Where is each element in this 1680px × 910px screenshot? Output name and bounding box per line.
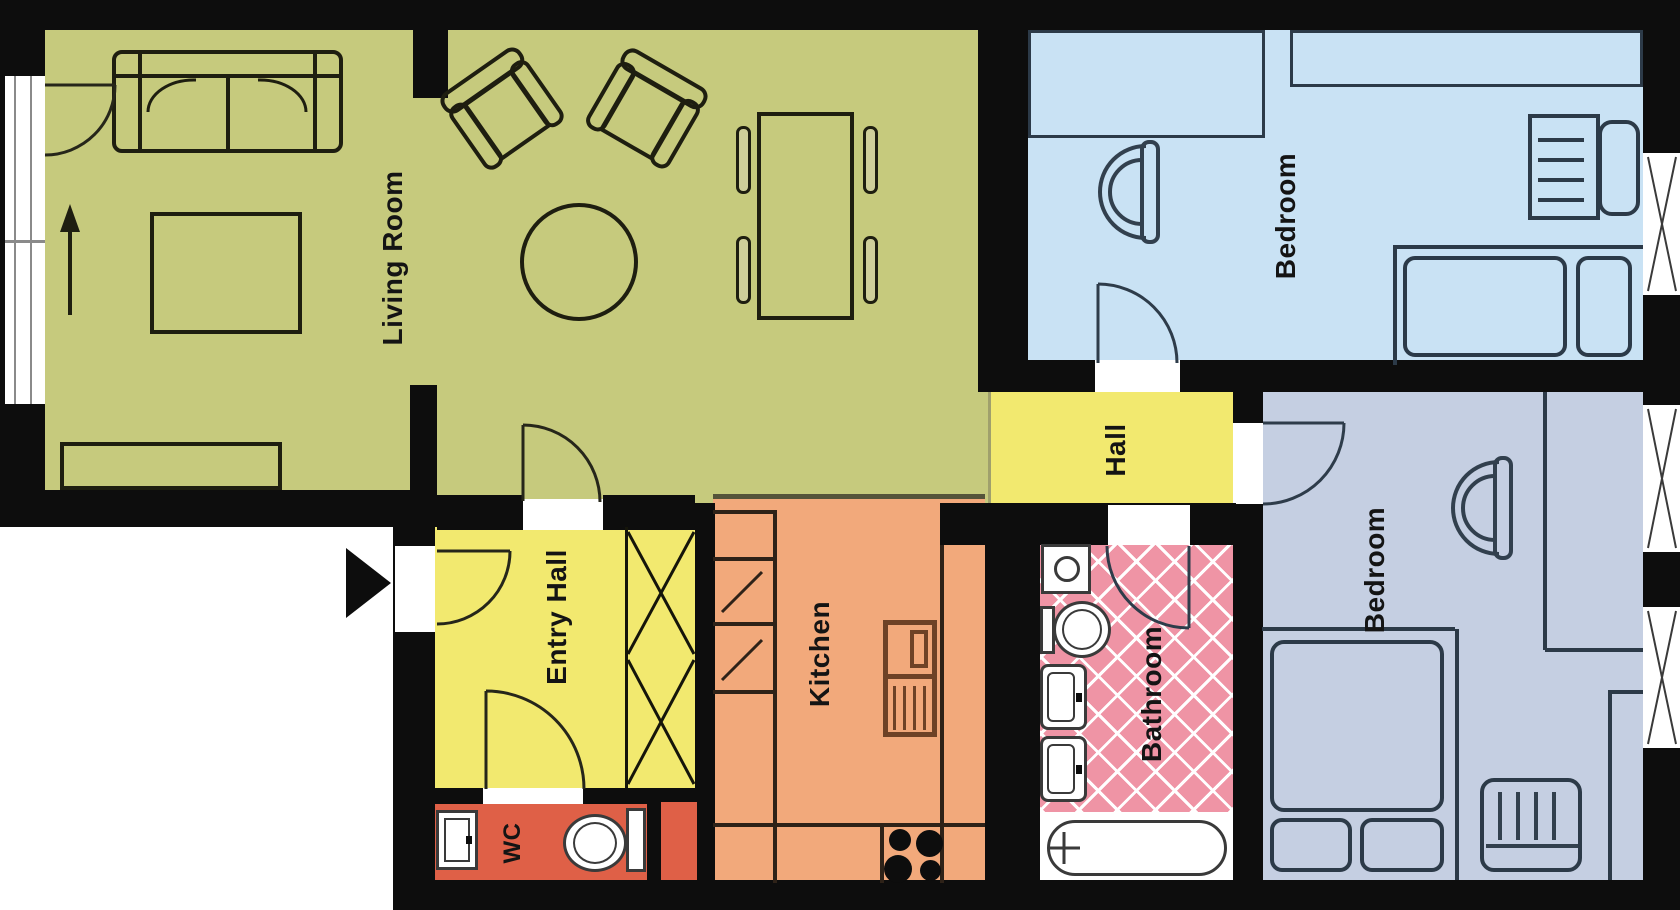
sink-basin <box>1047 744 1075 794</box>
room-label-entry-hall: Entry Hall <box>541 549 573 685</box>
wall <box>413 30 448 98</box>
sofa-seam <box>226 78 230 151</box>
wall <box>695 503 715 792</box>
duct-shaft <box>661 802 697 880</box>
wall <box>647 800 661 883</box>
sofa-armrest <box>138 52 142 151</box>
entrance-door-gap <box>395 546 435 632</box>
sink-drainer <box>913 686 916 730</box>
counter-line <box>773 510 777 883</box>
dining-chair <box>863 126 878 194</box>
stove-burner <box>916 830 943 857</box>
floor-plan: Living Room Bedroom Hall Entry Hall Kitc… <box>0 0 1680 910</box>
room-label-hall: Hall <box>1100 423 1132 476</box>
sink-tap <box>1076 693 1082 702</box>
wc-door-gap <box>483 788 583 804</box>
wall <box>437 495 523 530</box>
living-entry-door-gap <box>523 499 603 530</box>
counter-line <box>713 690 777 694</box>
wall <box>985 545 1040 883</box>
dining-chair <box>736 236 751 304</box>
sideboard <box>60 442 282 490</box>
washing-machine-door <box>1054 556 1080 582</box>
counter-line <box>940 545 944 883</box>
kitchen-living-boundary <box>713 494 985 499</box>
desk <box>1528 114 1600 220</box>
dining-chair <box>863 236 878 304</box>
sink-drainer <box>893 686 896 730</box>
counter-line <box>880 823 884 883</box>
stove-burner <box>920 860 941 881</box>
coffee-table <box>150 212 302 334</box>
sink-drainer <box>923 686 926 730</box>
room-label-bedroom-bottom: Bedroom <box>1359 507 1391 633</box>
room-label-living: Living Room <box>377 170 409 345</box>
window <box>1643 405 1680 552</box>
counter-line <box>713 557 777 561</box>
dining-table <box>757 112 854 320</box>
sink-tap <box>1076 765 1082 774</box>
wall <box>583 788 649 804</box>
room-label-bathroom: Bathroom <box>1136 626 1168 762</box>
room-label-kitchen: Kitchen <box>804 601 836 707</box>
wall <box>0 490 437 527</box>
wall <box>0 0 1680 30</box>
wall <box>1233 392 1263 423</box>
counter-line <box>713 823 985 827</box>
window <box>1643 607 1680 748</box>
sink-basin <box>1047 672 1075 722</box>
pillow <box>1270 818 1352 872</box>
wall <box>393 880 1680 910</box>
wall <box>410 385 437 492</box>
wall <box>978 360 1680 392</box>
wardrobe <box>1028 30 1265 138</box>
entrance-arrow-icon <box>346 548 391 618</box>
wall <box>603 495 695 530</box>
bedroom-top-door-gap <box>1095 360 1180 392</box>
hall-living-boundary <box>988 392 991 505</box>
round-table <box>520 203 638 321</box>
bathtub <box>1047 820 1227 876</box>
mattress <box>1270 640 1444 812</box>
bathroom-door-gap <box>1108 505 1190 545</box>
counter-line <box>713 622 777 626</box>
dining-chair <box>736 126 751 194</box>
counter-line <box>713 510 777 514</box>
mattress <box>1403 256 1567 357</box>
wall <box>1233 503 1263 883</box>
pillow <box>1576 256 1632 357</box>
wc-sink-tap <box>466 836 472 844</box>
wall <box>435 788 483 804</box>
shelf <box>1290 30 1643 87</box>
desk-chair <box>1598 120 1640 216</box>
wall <box>697 790 715 883</box>
sink-unit-divider <box>888 674 932 679</box>
closet-edge <box>625 527 628 788</box>
sofa-armrest <box>313 52 317 151</box>
wc-toilet-bowl <box>573 822 617 864</box>
room-label-bedroom-top: Bedroom <box>1270 153 1302 279</box>
wc-toilet-tank <box>626 808 646 872</box>
wall <box>978 30 1028 365</box>
window-divider <box>5 240 45 243</box>
sink-drainer <box>903 686 906 730</box>
stove-burner <box>889 829 911 851</box>
toilet-bowl <box>1062 609 1102 650</box>
window <box>1643 153 1680 295</box>
dresser <box>1480 778 1582 872</box>
sink-bowl <box>910 630 928 668</box>
stove-burner <box>884 855 912 883</box>
room-label-wc: WC <box>499 823 527 864</box>
pillow <box>1360 818 1444 872</box>
bedroom-bottom-door-gap <box>1236 423 1263 504</box>
